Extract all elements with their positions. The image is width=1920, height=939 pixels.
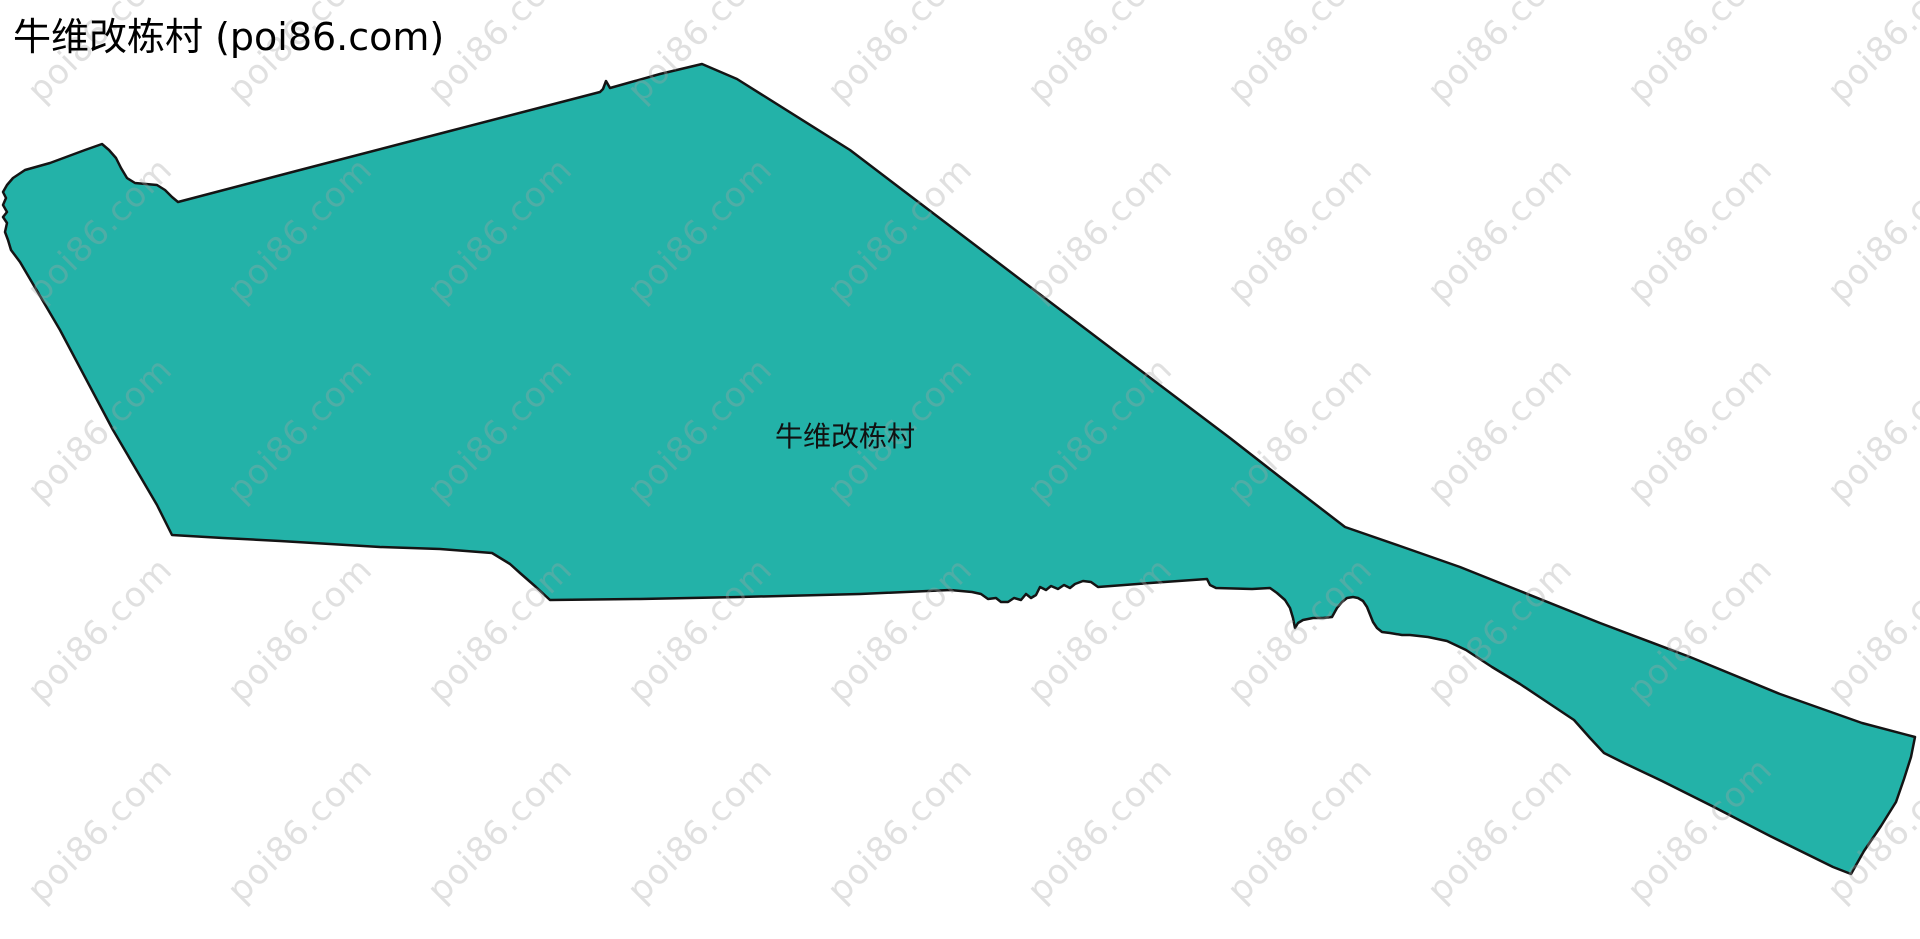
page-title: 牛维改栋村 (poi86.com) xyxy=(13,6,444,61)
village-map-svg xyxy=(0,0,1920,939)
village-boundary-polygon xyxy=(3,64,1915,874)
map-canvas: poi86.compoi86.compoi86.compoi86.compoi8… xyxy=(0,0,1920,939)
village-label: 牛维改栋村 xyxy=(775,415,915,455)
